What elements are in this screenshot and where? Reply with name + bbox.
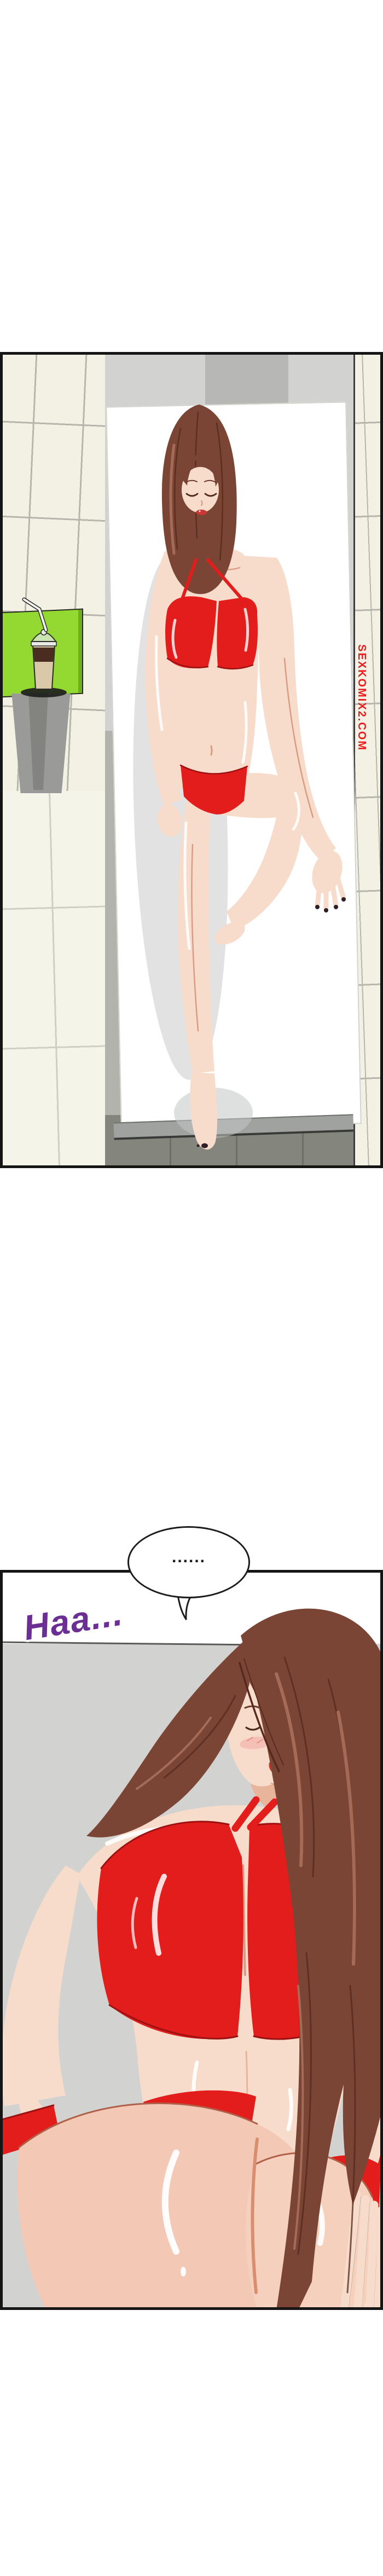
lips: [196, 510, 207, 515]
comic-page: { "colors": { "page-bg": "#ffffff", "pan…: [0, 0, 383, 2576]
left-cup: [97, 1822, 243, 2039]
nail: [324, 908, 328, 912]
iced-coffee-drink: [21, 599, 67, 697]
toenail: [197, 1145, 200, 1147]
nail: [341, 897, 346, 902]
panel1-figure-art: [0, 352, 383, 1168]
panel-closeup-scene: [0, 1570, 383, 2310]
foot: [190, 1072, 217, 1150]
straw-outline: [24, 599, 46, 630]
nail: [334, 905, 338, 909]
left-upper-arm: [1, 1865, 81, 2106]
nail: [315, 905, 320, 909]
panel-bathroom-scene: [0, 352, 383, 1168]
woman-closeup-figure: [0, 1609, 383, 2310]
bikini-top-right-cup: [217, 597, 258, 669]
speech-bubble-text: ......: [172, 1548, 206, 1567]
lid-rim: [31, 642, 56, 646]
speech-bubble: ......: [127, 1526, 250, 1598]
navel: [211, 746, 212, 755]
panel2-figure-art: [0, 1570, 383, 2310]
coffee-liquid: [33, 648, 54, 662]
toenail: [201, 1143, 208, 1148]
fingers: [317, 880, 344, 909]
watermark-text: SEXKOMIX2.COM: [355, 644, 368, 751]
